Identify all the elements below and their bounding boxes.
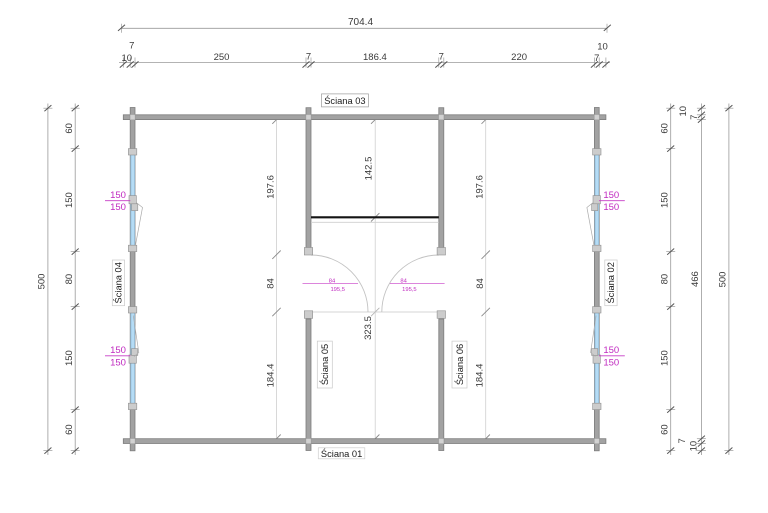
svg-text:7: 7: [677, 438, 688, 443]
svg-text:197.6: 197.6: [475, 175, 486, 199]
svg-text:150: 150: [659, 350, 670, 366]
svg-text:323.5: 323.5: [363, 316, 374, 340]
svg-text:7: 7: [306, 52, 311, 63]
svg-text:84: 84: [329, 279, 336, 285]
svg-text:7: 7: [689, 115, 700, 120]
svg-text:7: 7: [129, 41, 134, 52]
svg-text:Ściana 02: Ściana 02: [605, 262, 616, 303]
svg-text:Ściana 03: Ściana 03: [324, 95, 365, 106]
svg-text:Ściana 05: Ściana 05: [319, 344, 330, 385]
svg-text:250: 250: [214, 52, 230, 63]
svg-text:150: 150: [110, 345, 126, 356]
svg-text:195,5: 195,5: [402, 287, 417, 293]
svg-text:84: 84: [266, 278, 277, 289]
svg-text:184.4: 184.4: [475, 364, 486, 388]
svg-text:150: 150: [603, 202, 619, 213]
svg-text:704.4: 704.4: [348, 17, 373, 28]
svg-text:10: 10: [678, 106, 689, 117]
svg-text:Ściana 01: Ściana 01: [321, 448, 362, 459]
svg-text:60: 60: [659, 424, 670, 435]
svg-text:10: 10: [688, 441, 699, 452]
svg-text:80: 80: [64, 274, 75, 285]
svg-text:150: 150: [64, 350, 75, 366]
svg-text:150: 150: [603, 345, 619, 356]
svg-text:466: 466: [690, 271, 701, 287]
svg-text:186.4: 186.4: [363, 52, 387, 63]
svg-text:150: 150: [659, 192, 670, 208]
svg-text:500: 500: [37, 274, 48, 290]
svg-text:80: 80: [659, 274, 670, 285]
svg-text:150: 150: [110, 190, 126, 201]
svg-text:10: 10: [122, 53, 133, 64]
svg-text:84: 84: [400, 279, 407, 285]
svg-text:150: 150: [603, 190, 619, 201]
svg-text:184.4: 184.4: [265, 364, 276, 388]
svg-text:60: 60: [64, 424, 75, 435]
svg-text:195,5: 195,5: [330, 287, 345, 293]
svg-text:Ściana 06: Ściana 06: [454, 344, 465, 385]
svg-text:150: 150: [110, 202, 126, 213]
svg-text:500: 500: [718, 272, 729, 288]
svg-text:150: 150: [110, 357, 126, 368]
svg-text:7: 7: [594, 53, 599, 64]
svg-text:7: 7: [439, 52, 444, 63]
svg-text:60: 60: [659, 123, 670, 134]
svg-text:197.6: 197.6: [265, 175, 276, 199]
svg-text:60: 60: [64, 123, 75, 134]
svg-text:10: 10: [597, 42, 608, 53]
svg-text:84: 84: [475, 278, 486, 289]
svg-text:Ściana 04: Ściana 04: [113, 262, 124, 303]
svg-text:150: 150: [603, 357, 619, 368]
svg-text:142.5: 142.5: [364, 157, 375, 181]
svg-text:150: 150: [64, 192, 75, 208]
svg-text:220: 220: [511, 52, 527, 63]
